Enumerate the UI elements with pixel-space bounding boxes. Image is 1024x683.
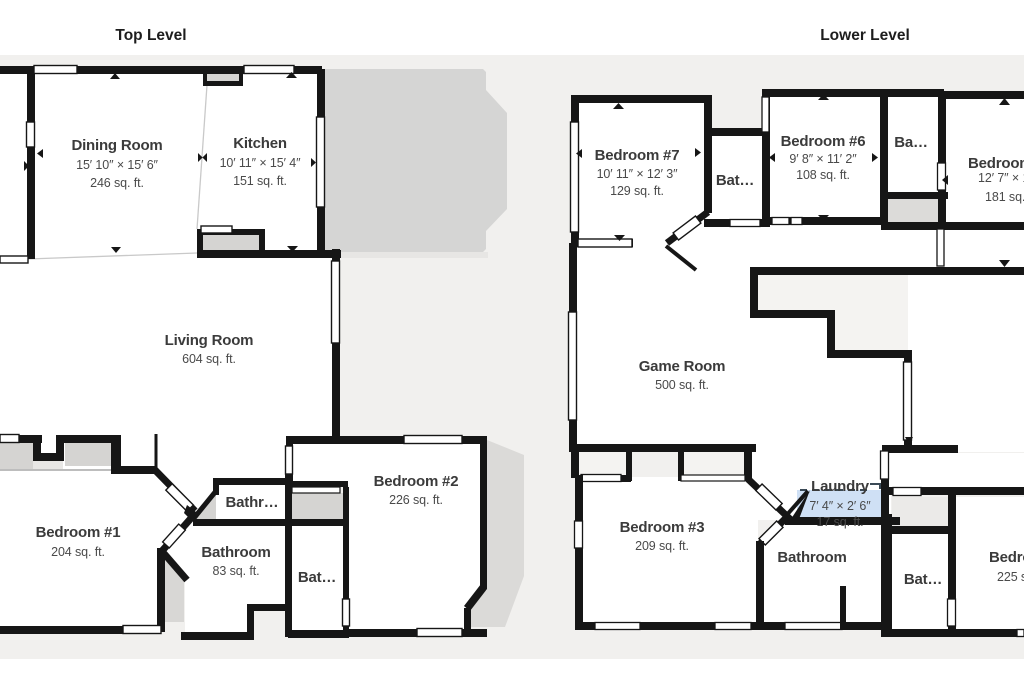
svg-text:15′ 10″ × 15′ 6″: 15′ 10″ × 15′ 6″ — [76, 158, 158, 172]
svg-text:7′ 4″ × 2′ 6″: 7′ 4″ × 2′ 6″ — [809, 499, 871, 513]
svg-text:604 sq. ft.: 604 sq. ft. — [182, 352, 236, 366]
svg-text:Bedroom #4: Bedroom #4 — [989, 549, 1024, 566]
svg-text:Bedroom #2: Bedroom #2 — [374, 473, 459, 490]
svg-text:500 sq. ft.: 500 sq. ft. — [655, 378, 709, 392]
svg-text:108 sq. ft.: 108 sq. ft. — [796, 168, 850, 182]
svg-text:129 sq. ft.: 129 sq. ft. — [610, 184, 664, 198]
svg-text:225 sq. ft.: 225 sq. ft. — [997, 570, 1024, 584]
svg-text:Bedroom #7: Bedroom #7 — [595, 147, 680, 164]
svg-text:Bathr…: Bathr… — [226, 494, 279, 511]
svg-text:181 sq. ft.: 181 sq. ft. — [985, 190, 1024, 204]
svg-text:Ba…: Ba… — [894, 134, 928, 151]
svg-text:Living Room: Living Room — [165, 332, 254, 349]
svg-text:10′ 11″ × 15′ 4″: 10′ 11″ × 15′ 4″ — [220, 156, 302, 170]
svg-text:Lower Level: Lower Level — [820, 27, 910, 44]
svg-text:Bedroom #5: Bedroom #5 — [968, 155, 1024, 172]
svg-text:9′ 8″ × 11′ 2″: 9′ 8″ × 11′ 2″ — [789, 152, 857, 166]
svg-text:Top Level: Top Level — [115, 27, 186, 44]
svg-text:Bat…: Bat… — [716, 172, 754, 189]
svg-text:12′ 7″ × 14′ 4″: 12′ 7″ × 14′ 4″ — [978, 171, 1024, 185]
svg-text:10′ 11″ × 12′ 3″: 10′ 11″ × 12′ 3″ — [597, 167, 679, 181]
svg-text:151 sq. ft.: 151 sq. ft. — [233, 174, 287, 188]
svg-text:83 sq. ft.: 83 sq. ft. — [213, 564, 260, 578]
svg-text:204 sq. ft.: 204 sq. ft. — [51, 545, 105, 559]
svg-text:Dining Room: Dining Room — [71, 137, 162, 154]
svg-text:Kitchen: Kitchen — [233, 135, 287, 152]
svg-text:Bathroom: Bathroom — [777, 549, 846, 566]
svg-text:Laundry: Laundry — [811, 478, 870, 495]
svg-text:Bedroom #1: Bedroom #1 — [36, 524, 121, 541]
svg-text:209 sq. ft.: 209 sq. ft. — [635, 539, 689, 553]
svg-text:Bedroom #6: Bedroom #6 — [781, 133, 866, 150]
svg-text:Bathroom: Bathroom — [201, 544, 270, 561]
svg-text:226 sq. ft.: 226 sq. ft. — [389, 493, 443, 507]
svg-text:Bedroom #3: Bedroom #3 — [620, 519, 705, 536]
svg-text:Bat…: Bat… — [904, 571, 942, 588]
svg-text:17 sq. ft.: 17 sq. ft. — [817, 515, 864, 529]
svg-text:Game Room: Game Room — [639, 358, 726, 375]
svg-text:246 sq. ft.: 246 sq. ft. — [90, 176, 144, 190]
svg-text:Bat…: Bat… — [298, 569, 336, 586]
